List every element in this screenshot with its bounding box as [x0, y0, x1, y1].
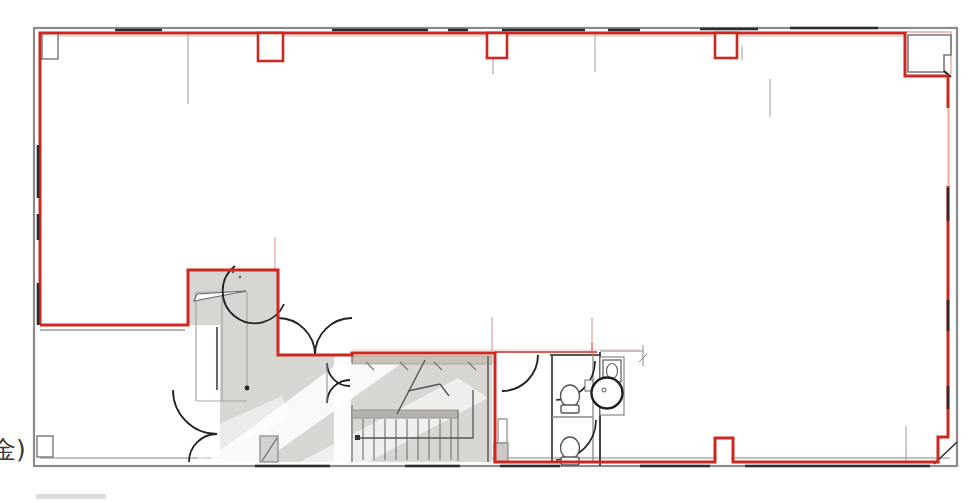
grid-lines-pink: [275, 32, 951, 351]
lobby-door-arc: [502, 355, 538, 391]
duct-shaft: [260, 436, 278, 462]
core-area-fill: [188, 270, 492, 462]
stair-top-wall: [352, 356, 492, 364]
stair-landing: [352, 410, 458, 418]
top-wall-columns: [258, 33, 737, 61]
wash-basin: [592, 378, 623, 409]
door-swing-arc: [173, 390, 217, 434]
top-right-shaft: [908, 35, 951, 77]
lease-boundary-red: [40, 33, 948, 462]
column-notch: [37, 436, 53, 457]
date-annotation-label: 金): [0, 435, 26, 464]
column-notch: [42, 33, 58, 59]
double-door-arc: [278, 318, 315, 355]
floor-plan-image: 金): [0, 0, 980, 502]
double-door-arc: [315, 318, 352, 355]
door-pivot-dot: [245, 386, 250, 391]
floor-plan-drawing: 金): [0, 0, 980, 502]
sink-area: [592, 357, 625, 415]
cropped-caption-smudge: [36, 494, 106, 499]
toilet-block: [494, 345, 647, 466]
stair-start-dot: [355, 435, 360, 440]
toilet-fixture: [561, 385, 580, 413]
bottom-wall-column: [717, 440, 731, 461]
